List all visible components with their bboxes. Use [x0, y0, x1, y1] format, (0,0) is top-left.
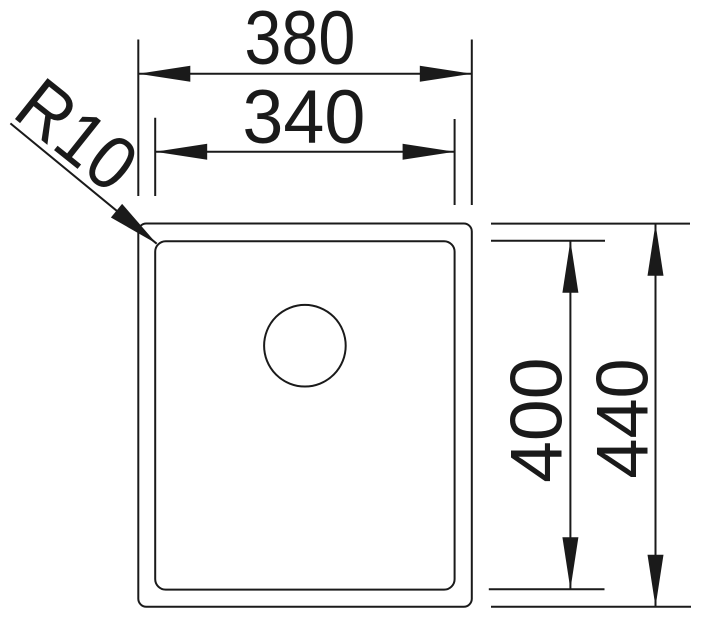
svg-text:400: 400	[496, 358, 577, 483]
svg-text:380: 380	[244, 0, 355, 81]
svg-text:340: 340	[242, 75, 365, 160]
svg-text:440: 440	[582, 358, 663, 478]
